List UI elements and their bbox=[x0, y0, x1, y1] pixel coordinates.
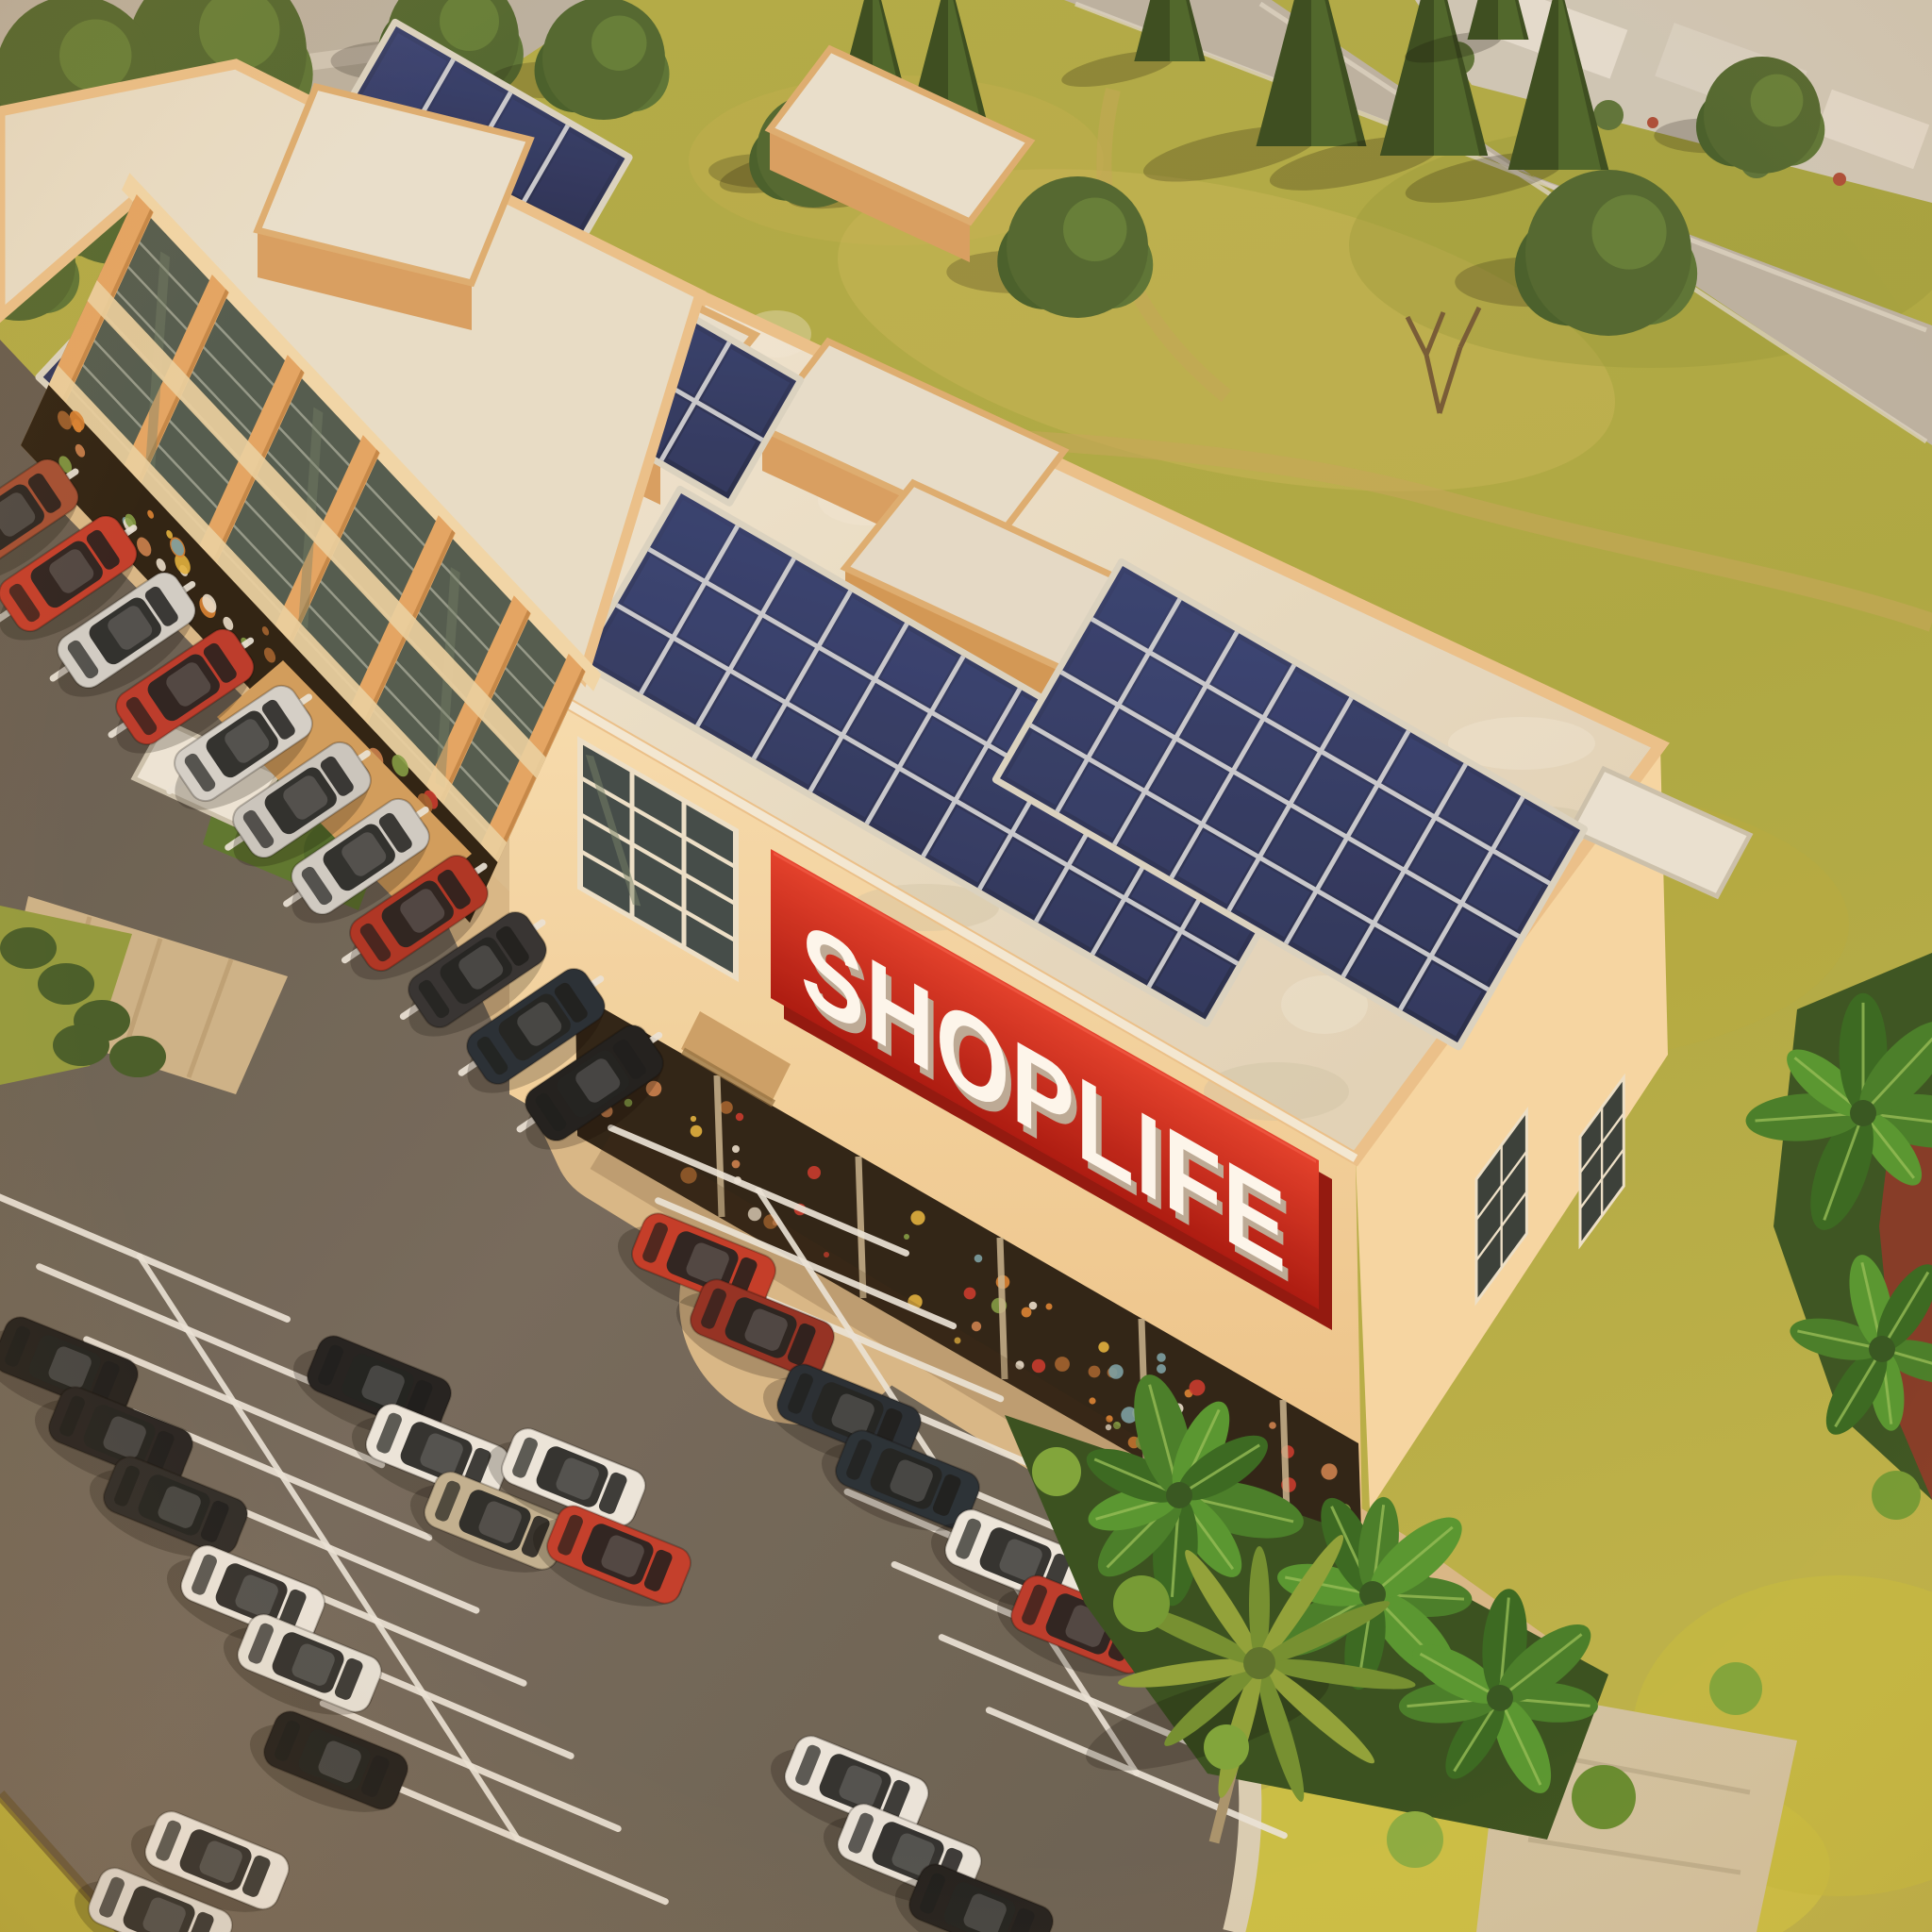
aerial-photo: Aerial view of SHOPLIFE shopping center … bbox=[0, 0, 1932, 1932]
vignette bbox=[0, 0, 1932, 1932]
aerial-scene: Aerial view of SHOPLIFE shopping center … bbox=[0, 0, 1932, 1932]
